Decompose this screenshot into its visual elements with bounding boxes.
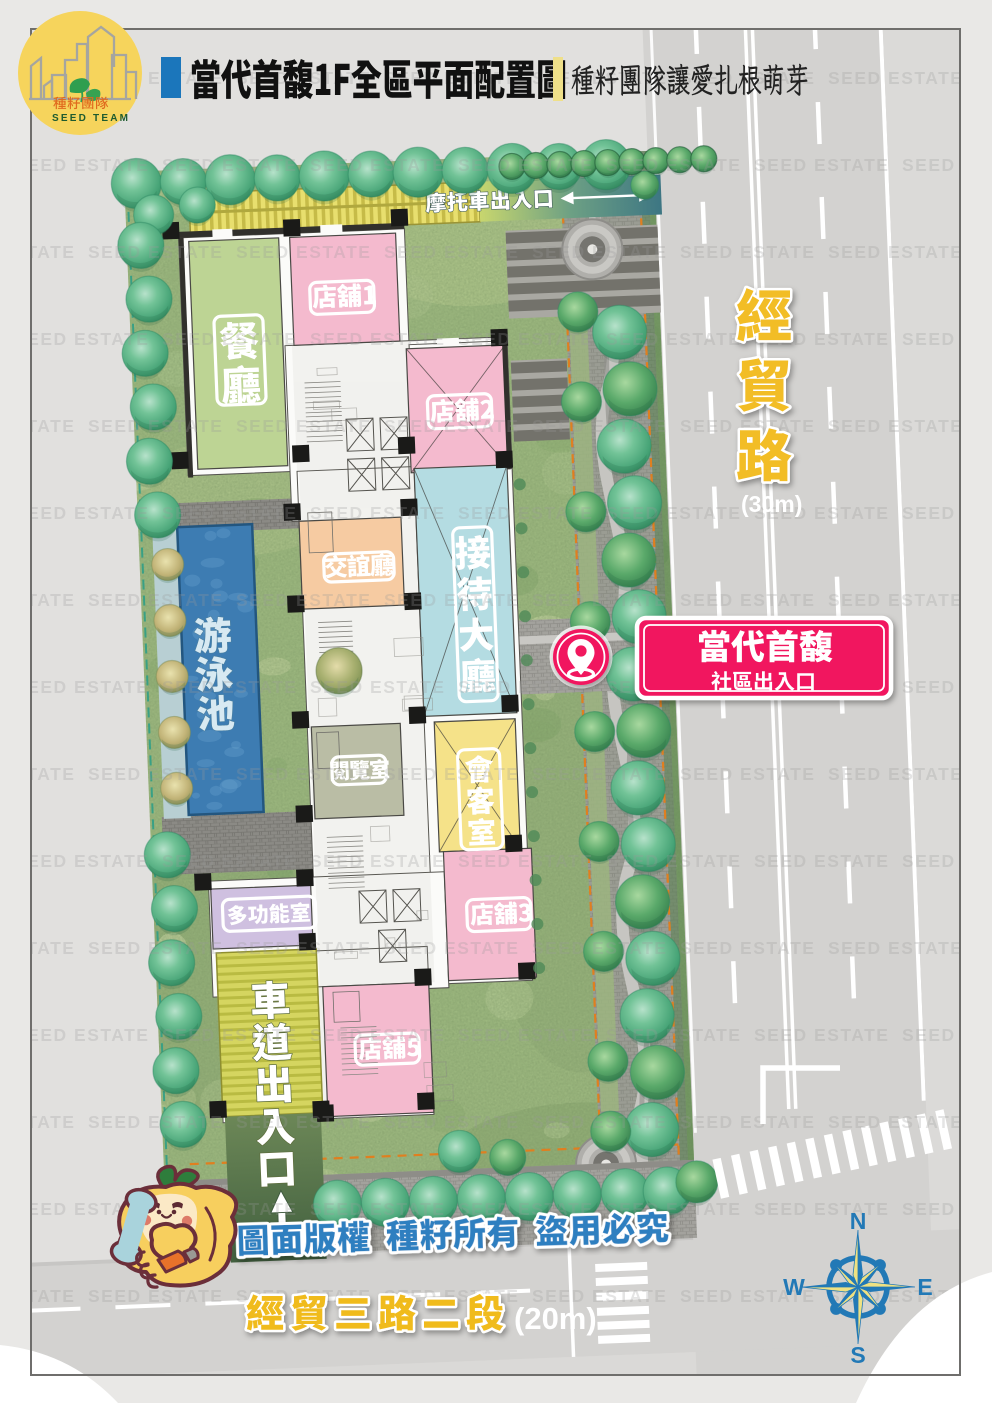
svg-text:SEED ESTATE: SEED ESTATE — [310, 155, 445, 175]
svg-text:SEED ESTATE: SEED ESTATE — [14, 503, 149, 523]
svg-text:SEED ESTATE: SEED ESTATE — [162, 677, 297, 697]
svg-text:SEED TEAM: SEED TEAM — [52, 113, 130, 124]
svg-text:SEED ESTATE: SEED ESTATE — [310, 503, 445, 523]
svg-text:SEED ESTATE: SEED ESTATE — [384, 938, 519, 958]
svg-text:SEED ESTATE: SEED ESTATE — [828, 1112, 963, 1132]
svg-text:SEED ESTATE: SEED ESTATE — [532, 764, 667, 784]
svg-text:SEED ESTATE: SEED ESTATE — [680, 590, 815, 610]
svg-text:SEED ESTATE: SEED ESTATE — [88, 416, 223, 436]
svg-text:N: N — [850, 1208, 867, 1234]
svg-text:SEED ESTATE: SEED ESTATE — [162, 155, 297, 175]
svg-text:SEED ESTATE: SEED ESTATE — [458, 155, 593, 175]
svg-text:SEED ESTATE: SEED ESTATE — [384, 242, 519, 262]
svg-text:W: W — [783, 1274, 805, 1300]
svg-text:SEED ESTATE: SEED ESTATE — [532, 416, 667, 436]
svg-text:SEED ESTATE: SEED ESTATE — [162, 503, 297, 523]
svg-text:SEED ESTATE: SEED ESTATE — [162, 329, 297, 349]
svg-text:SEED ESTATE: SEED ESTATE — [458, 851, 593, 871]
svg-text:SEED ESTATE: SEED ESTATE — [606, 155, 741, 175]
svg-text:SEED ESTATE: SEED ESTATE — [88, 242, 223, 262]
svg-text:SEED ESTATE: SEED ESTATE — [310, 851, 445, 871]
svg-text:SEED ESTATE: SEED ESTATE — [14, 677, 149, 697]
svg-text:SEED ESTATE: SEED ESTATE — [680, 242, 815, 262]
svg-text:SEED ESTATE: SEED ESTATE — [680, 1112, 815, 1132]
svg-text:SEED ESTATE: SEED ESTATE — [88, 938, 223, 958]
svg-text:SEED ESTATE: SEED ESTATE — [384, 416, 519, 436]
svg-text:(20m): (20m) — [514, 1301, 597, 1336]
svg-text:SEED ESTATE: SEED ESTATE — [828, 938, 963, 958]
svg-text:SEED ESTATE: SEED ESTATE — [828, 764, 963, 784]
svg-text:(30m): (30m) — [741, 491, 802, 517]
svg-text:SEED ESTATE: SEED ESTATE — [88, 1112, 223, 1132]
svg-text:SEED ESTATE: SEED ESTATE — [162, 851, 297, 871]
svg-text:SEED ESTATE: SEED ESTATE — [236, 938, 371, 958]
svg-text:SEED ESTATE: SEED ESTATE — [310, 1025, 445, 1045]
svg-text:SEED ESTATE: SEED ESTATE — [532, 242, 667, 262]
svg-text:SEED ESTATE: SEED ESTATE — [828, 68, 963, 88]
svg-text:SEED ESTATE: SEED ESTATE — [458, 503, 593, 523]
svg-text:SEED ESTATE: SEED ESTATE — [162, 1025, 297, 1045]
svg-text:SEED ESTATE: SEED ESTATE — [236, 590, 371, 610]
svg-text:S: S — [850, 1342, 865, 1368]
svg-text:SEED ESTATE: SEED ESTATE — [828, 590, 963, 610]
svg-text:SEED ESTATE: SEED ESTATE — [236, 764, 371, 784]
svg-text:SEED ESTATE: SEED ESTATE — [606, 1025, 741, 1045]
svg-text:SEED ESTATE: SEED ESTATE — [88, 764, 223, 784]
svg-text:SEED ESTATE: SEED ESTATE — [458, 329, 593, 349]
svg-text:SEED ESTATE: SEED ESTATE — [754, 851, 889, 871]
svg-text:SEED ESTATE: SEED ESTATE — [606, 503, 741, 523]
svg-text:SEED ESTATE: SEED ESTATE — [384, 590, 519, 610]
svg-text:SEED ESTATE: SEED ESTATE — [606, 329, 741, 349]
svg-text:SEED ESTATE: SEED ESTATE — [532, 938, 667, 958]
svg-text:SEED ESTATE: SEED ESTATE — [14, 851, 149, 871]
svg-text:SEED ESTATE: SEED ESTATE — [754, 155, 889, 175]
svg-text:SEED ESTATE: SEED ESTATE — [532, 590, 667, 610]
svg-text:SEED ESTATE: SEED ESTATE — [754, 1199, 889, 1219]
svg-text:SEED ESTATE: SEED ESTATE — [88, 590, 223, 610]
svg-text:SEED ESTATE: SEED ESTATE — [828, 416, 963, 436]
svg-text:SEED ESTATE: SEED ESTATE — [680, 938, 815, 958]
svg-text:SEED ESTATE: SEED ESTATE — [384, 764, 519, 784]
svg-text:SEED ESTATE: SEED ESTATE — [754, 1025, 889, 1045]
svg-text:SEED ESTATE: SEED ESTATE — [458, 1025, 593, 1045]
svg-text:SEED ESTATE: SEED ESTATE — [14, 155, 149, 175]
svg-text:SEED ESTATE: SEED ESTATE — [606, 851, 741, 871]
svg-text:SEED ESTATE: SEED ESTATE — [532, 1112, 667, 1132]
svg-text:SEED ESTATE: SEED ESTATE — [310, 329, 445, 349]
svg-text:SEED ESTATE: SEED ESTATE — [88, 1286, 223, 1306]
svg-text:SEED ESTATE: SEED ESTATE — [828, 242, 963, 262]
svg-text:SEED ESTATE: SEED ESTATE — [236, 416, 371, 436]
svg-text:SEED ESTATE: SEED ESTATE — [236, 1112, 371, 1132]
svg-text:SEED ESTATE: SEED ESTATE — [14, 329, 149, 349]
svg-text:SEED ESTATE: SEED ESTATE — [14, 1025, 149, 1045]
svg-text:E: E — [917, 1274, 932, 1300]
svg-text:SEED ESTATE: SEED ESTATE — [384, 1112, 519, 1132]
svg-text:SEED ESTATE: SEED ESTATE — [680, 764, 815, 784]
svg-text:SEED ESTATE: SEED ESTATE — [310, 677, 445, 697]
svg-text:SEED ESTATE: SEED ESTATE — [236, 242, 371, 262]
